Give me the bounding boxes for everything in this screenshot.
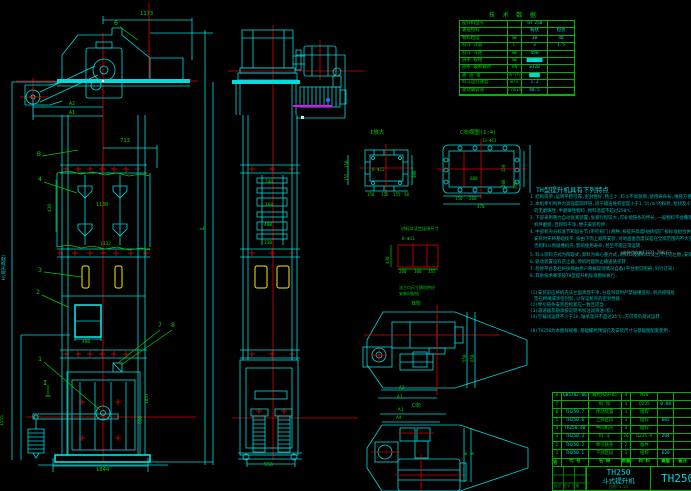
dim-label: 2: [36, 289, 40, 296]
part-weight: 204: [658, 434, 674, 442]
dim-label: 200: [469, 197, 477, 201]
part-no: 1: [553, 450, 562, 458]
dim-label: B: [37, 151, 41, 158]
dim-label: A4: [396, 417, 401, 422]
part-code: TH250.3: [562, 434, 589, 442]
part-code: [562, 401, 589, 409]
dim-label: 13-Φ11: [482, 139, 496, 143]
tech-row-value2: [548, 51, 574, 58]
dim-label: 150: [345, 160, 349, 168]
tech-row-value1: 粉状: [522, 28, 548, 35]
part-remark: [674, 409, 691, 417]
dim-label: 安装时配钻: [399, 292, 419, 296]
part-qty: 4: [622, 426, 632, 434]
part-name: 牵引链条: [589, 442, 622, 450]
part-qty: 1: [622, 450, 632, 458]
dim-label: 713: [120, 139, 130, 145]
note-line: 机件磨损,且卸料干净,便于安装检修.: [534, 224, 608, 228]
dim-label: 470: [477, 205, 485, 209]
part-remark: [674, 442, 691, 450]
dim-label: I放大: [370, 131, 384, 137]
parts-list-row: 7 机 架 1 Q235 0.08: [553, 401, 691, 409]
part-material: Q235-A: [631, 434, 658, 442]
side-elevation-view: [228, 25, 364, 467]
dim-label: 330: [264, 242, 272, 247]
tech-table-row: 物料粒度 mm 30 40: [460, 36, 574, 43]
note-line: (8)TH250为本图样规格,基础螺栓预留孔及安装尺寸与基础图配套使用.: [530, 330, 671, 334]
tech-row-unit: kN: [508, 65, 522, 72]
part-no: 6: [553, 409, 562, 417]
parts-list-row: 2 TH250.2 牵引链条 2 备件: [553, 442, 691, 450]
dim-label: 1130: [96, 203, 108, 208]
tech-row-unit: m³/h: [508, 73, 522, 80]
tech-row-unit: L: [508, 43, 522, 50]
top-view-head: [363, 305, 527, 398]
dim-label: 1844: [96, 468, 109, 474]
note-line: (1)安装前应将机壳法兰面清理干净,分段吊装时严禁碰撞变形,机壳接缝处: [530, 292, 675, 296]
dim-label: 7: [158, 322, 162, 329]
dim-label: 155: [393, 193, 401, 197]
part-no: 3: [553, 434, 562, 442]
parts-list-row: 1 TH250.1 下部区段 1 组焊 620: [553, 450, 691, 458]
dim-label: A2: [69, 102, 75, 107]
title-block-left-note: 标记 签字 日期: [554, 484, 586, 489]
part-no: 8: [553, 393, 562, 401]
notes-header: TH型提升机具有下列特点: [536, 184, 609, 194]
note-line: 否则料斗易碰撞机壳,影响使用寿命,甚至不能正常运转.: [534, 245, 643, 249]
tech-row-value1: ████: [522, 73, 548, 80]
part-remark: [674, 450, 691, 458]
tech-row-value2: [548, 21, 574, 28]
note-line: 1.结构简单,运转平稳可靠,密封性好,扬尘少,料斗不易脱落,使用寿命长,维修方便…: [530, 196, 691, 200]
dim-label: 300: [414, 270, 422, 274]
tech-row-label: 输 送 量: [460, 73, 508, 80]
dim-label: 1555: [1, 415, 6, 426]
tech-row-value2: 40: [548, 36, 574, 43]
parts-list: 8 GB5782-86 螺栓M20×85 4 M20 7 机 架 1 Q235 …: [552, 392, 691, 467]
tech-table-row: 输送物料 粉状 粒状: [460, 28, 574, 35]
dim-label: a: [472, 452, 477, 455]
part-qty: 26: [622, 434, 632, 442]
dim-label: 430: [386, 256, 390, 264]
part-weight: [658, 442, 674, 450]
title-block-center: TH250 斗式提升机 比例 1:25: [587, 467, 651, 490]
tech-row-label: 链条 破断载荷: [460, 65, 508, 72]
note-line: 8.其余技术要求按TH型提升机标准图样执行.: [530, 275, 618, 279]
note-line: 6.驱动装置设有逆止器,停机时能防止输送链逆转.: [530, 261, 628, 265]
part-material: 备件: [631, 442, 658, 450]
tech-row-label: 输送物料: [460, 28, 508, 35]
dim-label: 8-Φ11: [402, 237, 415, 241]
part-qty: 1: [622, 409, 632, 417]
tech-row-label: 料斗运行速度: [460, 80, 508, 87]
tech-table-row: 料斗 斗距 mm 450: [460, 51, 574, 58]
dim-label: B: [465, 452, 470, 455]
part-material: 组焊: [631, 418, 658, 426]
tech-row-value2: [548, 65, 574, 72]
dim-label: A2: [399, 387, 404, 392]
dim-label: 8-Φ12: [372, 168, 385, 172]
front-elevation-view: [12, 3, 213, 472]
tech-row-label: 物料粒度: [460, 36, 508, 43]
dim-label: 150: [502, 164, 506, 172]
parts-list-row: 8 GB5782-86 螺栓M20×85 4 M20: [553, 393, 691, 401]
part-no: 5: [553, 418, 562, 426]
tech-row-value2: [548, 58, 574, 65]
parts-list-row: 5 TH250.6 上部区段 1 组焊 605: [553, 418, 691, 426]
tech-row-value1: 48.5: [522, 88, 548, 95]
dim-label: B向: [412, 302, 421, 308]
dim-label: 1332: [100, 243, 111, 248]
part-remark: [674, 426, 691, 434]
tech-table-row: 输 送 量 m³/h ████: [460, 73, 574, 80]
tech-row-label: 料斗 斗距: [460, 51, 508, 58]
tech-table-row: 料斗 斗容 L 3 1.5: [460, 43, 574, 50]
part-name: 上部区段: [589, 418, 622, 426]
part-weight: [658, 426, 674, 434]
inlet-flange-detail: [391, 245, 438, 269]
dim-label: 200: [399, 270, 407, 274]
tech-row-value2: [548, 80, 574, 87]
dim-label: 4: [38, 176, 42, 183]
tech-row-value2: 1.5: [548, 43, 574, 50]
note-line: 安装时先将基础找平,按由下而上顺序安装,对地面垂直度误差在全高范围内不大于10m…: [534, 238, 691, 242]
tech-row-value1: 450: [522, 51, 548, 58]
tech-row-value2: 粒状: [548, 28, 574, 35]
part-name: 下部区段: [589, 450, 622, 458]
dim-label: A1: [397, 396, 402, 401]
part-code: GB5782-86: [562, 393, 589, 401]
tech-row-value1: ██████: [522, 58, 548, 65]
parts-list-row: 4 TH250.4B 中间机壳 4 组焊: [553, 426, 691, 434]
dim-label: 550: [140, 416, 145, 424]
part-material: 组焊: [631, 426, 658, 434]
part-material: M20: [631, 393, 658, 401]
part-weight: [658, 393, 674, 401]
dim-label: 150: [367, 193, 375, 197]
parts-list-row: 3 TH250.3 料 斗 26 Q235-A 204: [553, 434, 691, 442]
dim-label: 430: [49, 204, 54, 212]
dim-label: 30: [404, 193, 409, 197]
dim-label: 650: [471, 354, 475, 362]
part-name: 机 架: [589, 401, 622, 409]
dim-label: 160: [265, 204, 273, 209]
part-name: 料 斗: [589, 434, 622, 442]
part-code: TH250.7: [562, 409, 589, 417]
tech-table-title: 技 术 数 据: [489, 10, 538, 19]
dim-label: C向视图(1:4): [460, 131, 496, 137]
note-line: 5.料斗装料方式为掏取式,卸料为离心重力式,进料口及卸料口法兰尺寸见左图,安装时…: [530, 254, 691, 258]
part-remark: [674, 401, 691, 409]
dim-label: 155: [428, 270, 436, 274]
dim-label: L: [199, 226, 206, 230]
dim-label: A1: [398, 409, 403, 414]
part-weight: 605: [658, 418, 674, 426]
tech-row-value1: ≥320: [522, 65, 548, 72]
note-line: 2.本机牵引构件为高强度圆环链,适于输送堆积密度小于1.5t/m³的粉状,粒状及…: [530, 203, 691, 207]
tech-table-row: 料斗运行速度 m/s 1.2: [460, 80, 574, 87]
part-weight: [658, 409, 674, 417]
dim-label: 8: [171, 322, 175, 329]
note-line: (3)减速器及轴承按说明书加注润滑油(脂).: [530, 310, 616, 314]
dim-label: 1173: [140, 12, 153, 18]
part-weight: 620: [658, 450, 674, 458]
dim-label: 法兰口尺寸随机供应: [399, 286, 435, 290]
dim-label: 600: [470, 177, 478, 181]
dim-label: 进料口法兰连接尺寸: [401, 227, 439, 231]
dim-label: 300: [413, 170, 417, 178]
tech-row-value1: TH 250: [522, 21, 548, 28]
part-qty: 2: [622, 442, 632, 450]
part-weight: 0.08: [658, 401, 674, 409]
tech-row-label: 驱动轴转速: [460, 88, 508, 95]
tech-row-unit: m/s: [508, 80, 522, 87]
tech-table-row: 提升机型号 TH 250: [460, 21, 574, 28]
dim-label: 480: [82, 341, 90, 346]
title-block-right: TH250: [651, 467, 691, 490]
tech-row-label: 链条 规格: [460, 58, 508, 65]
note-line: 7.检修平台及栏杆扶梯由用户根据现场情况自备(平台图见图册,另行订货).: [530, 268, 678, 272]
part-remark: [674, 393, 691, 401]
note-line: 垫石棉绳或涂密封胶,以保证机壳的密封性能.: [534, 298, 623, 302]
top-view-boot: [367, 414, 528, 491]
dim-label: 6: [114, 20, 118, 27]
tech-row-unit: [508, 28, 522, 35]
part-remark: [674, 418, 691, 426]
dim-label: 400: [264, 224, 272, 229]
dim-label: 155: [345, 173, 349, 181]
tech-row-label: 料斗 斗容: [460, 43, 508, 50]
part-qty: 1: [622, 401, 632, 409]
part-no: 7: [553, 401, 562, 409]
dim-label: 3: [38, 267, 42, 274]
dim-label: 240: [265, 181, 273, 186]
c-direction-view: [437, 139, 530, 204]
tech-row-unit: r/min: [508, 88, 522, 95]
part-no: 4: [553, 426, 562, 434]
part-remark: [674, 434, 691, 442]
part-qty: 1: [622, 418, 632, 426]
dim-label: 550: [463, 354, 467, 362]
tech-row-unit: mm: [508, 51, 522, 58]
part-name: 中间机壳: [589, 426, 622, 434]
tech-row-value2: [548, 73, 574, 80]
part-code: TH250.4B: [562, 426, 589, 434]
note-line: 4.中部机壳分标准节和加长节(带检视门)两种,按提升高度H由制造厂按标准组合供货…: [530, 231, 691, 235]
dim-label: 150: [455, 197, 463, 201]
dim-label: 200: [502, 179, 506, 187]
part-code: TH250.6: [562, 418, 589, 426]
note-line: 的无磨琢性,半磨琢性物料,物料温度不超过250℃.: [534, 210, 634, 214]
tech-row-value2: [548, 88, 574, 95]
tech-row-unit: mm: [508, 36, 522, 43]
title-block-revision-grid: 标记 签字 日期: [553, 467, 587, 490]
dim-label: A1: [69, 111, 75, 116]
cad-drawing-canvas: 11736A2A1713B44301130133232480781IH(提升高度…: [0, 0, 691, 491]
tech-row-unit: mm: [508, 58, 522, 65]
part-qty: 4: [622, 393, 632, 401]
drawing-scale: 比例 1:25: [587, 485, 650, 490]
dim-label: C向: [412, 404, 421, 410]
part-no: 2: [553, 442, 562, 450]
tech-row-value1: 1.2: [522, 80, 548, 87]
note-line: 3.下部采用重力自动张紧装置,张紧行程较大,可补偿链条的伸长,一般物料不会撒落,…: [530, 217, 691, 221]
part-code: TH250.2: [562, 442, 589, 450]
part-material: 组焊: [631, 409, 658, 417]
part-name: 螺栓M20×85: [589, 393, 622, 401]
tech-row-value1: 30: [522, 36, 548, 43]
part-material: 组焊: [631, 450, 658, 458]
dim-label: 155: [381, 193, 389, 197]
part-name: 传动装置: [589, 409, 622, 417]
tech-table-row: 驱动轴转速 r/min 48.5: [460, 88, 574, 95]
dim-label: 1: [38, 356, 42, 363]
note-line: (2)牵引链条安装后松紧应一致且适当.: [530, 304, 606, 308]
tech-data-table: 提升机型号 TH 250 输送物料 粉状 粒状 物料粒度 mm 30 40 料斗…: [459, 20, 575, 96]
tech-table-row: 链条 破断载荷 kN ≥320: [460, 65, 574, 72]
dim-label: H(提升高度): [3, 254, 8, 280]
note-line: (4)空载试运转不少于2h,轴承温升不超过25℃,方可带负荷试运转.: [530, 316, 662, 320]
parts-list-row: 6 TH250.7 传动装置 1 组焊: [553, 409, 691, 417]
part-material: Q235: [631, 401, 658, 409]
dim-label: 320: [514, 181, 518, 189]
tech-row-unit: [508, 21, 522, 28]
dim-label: 556: [264, 463, 273, 468]
dim-label: I: [43, 380, 47, 387]
part-code: TH250.1: [562, 450, 589, 458]
drawing-number: TH250: [651, 467, 691, 485]
dim-label: 1857: [146, 393, 151, 404]
tech-table-row: 链条 规格 mm ██████: [460, 58, 574, 65]
tech-row-value1: 3: [522, 43, 548, 50]
parts-list-rows: 8 GB5782-86 螺栓M20×85 4 M20 7 机 架 1 Q235 …: [553, 393, 691, 459]
tech-row-label: 提升机型号: [460, 21, 508, 28]
title-block: 标记 签字 日期 TH250 斗式提升机 比例 1:25 TH250: [552, 466, 691, 491]
